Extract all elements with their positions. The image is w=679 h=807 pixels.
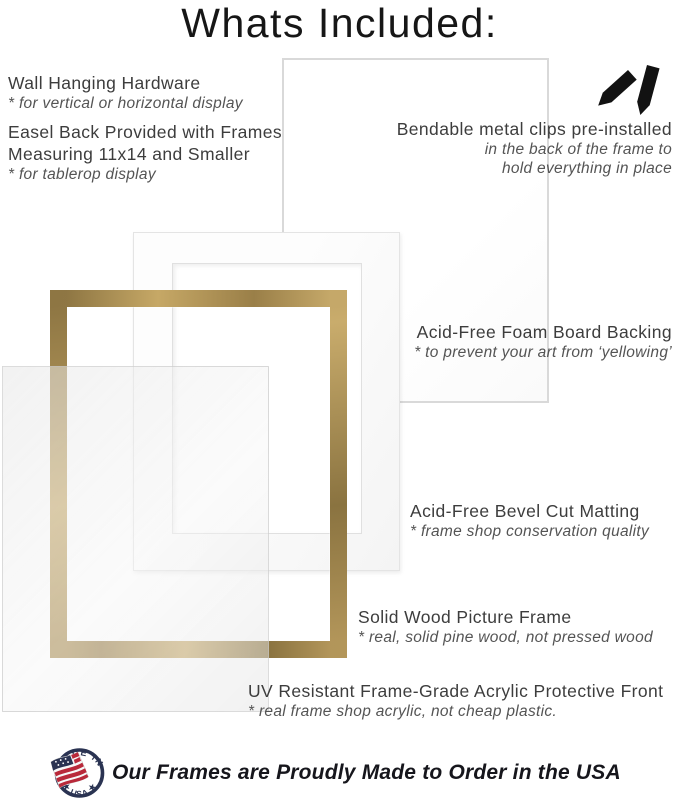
item-acrylic-front-note: * real frame shop acrylic, not cheap pla…	[248, 702, 663, 721]
item-wood-frame-title: Solid Wood Picture Frame	[358, 607, 653, 628]
infographic-canvas: Whats Included: Wall Hanging Hardware * …	[0, 0, 679, 807]
item-matting-note: * frame shop conservation quality	[410, 522, 649, 541]
item-foam-board-note: * to prevent your art from ‘yellowing’	[414, 343, 672, 362]
page-title: Whats Included:	[0, 0, 679, 47]
item-easel-back: Easel Back Provided with Frames Measurin…	[8, 121, 282, 185]
item-wood-frame-note: * real, solid pine wood, not pressed woo…	[358, 628, 653, 647]
item-metal-clips-note-line1: in the back of the frame to	[397, 140, 672, 159]
item-foam-board: Acid-Free Foam Board Backing * to preven…	[414, 322, 672, 362]
item-matting-title: Acid-Free Bevel Cut Matting	[410, 501, 649, 522]
item-easel-back-note: * for tablerop display	[8, 165, 282, 185]
metal-clips-icon	[585, 58, 677, 128]
footer-tagline: Our Frames are Proudly Made to Order in …	[112, 761, 621, 785]
acrylic-sheet-graphic	[2, 366, 269, 712]
clip-right	[634, 65, 659, 117]
item-metal-clips: Bendable metal clips pre-installed in th…	[397, 119, 672, 178]
item-metal-clips-title: Bendable metal clips pre-installed	[397, 119, 672, 140]
item-wall-hanging-note: * for vertical or horizontal display	[8, 94, 243, 114]
item-metal-clips-note-line2: hold everything in place	[397, 159, 672, 178]
item-wood-frame: Solid Wood Picture Frame * real, solid p…	[358, 607, 653, 647]
item-foam-board-title: Acid-Free Foam Board Backing	[414, 322, 672, 343]
item-acrylic-front: UV Resistant Frame-Grade Acrylic Protect…	[248, 681, 663, 721]
item-easel-back-title-line2: Measuring 11x14 and Smaller	[8, 143, 282, 165]
item-wall-hanging: Wall Hanging Hardware * for vertical or …	[8, 72, 243, 114]
clip-left	[594, 70, 637, 110]
item-wall-hanging-title: Wall Hanging Hardware	[8, 72, 243, 94]
made-in-usa-flag-badge: MADE IN ★ USA ★	[50, 740, 108, 804]
item-easel-back-title-line1: Easel Back Provided with Frames	[8, 121, 282, 143]
item-acrylic-front-title: UV Resistant Frame-Grade Acrylic Protect…	[248, 681, 663, 702]
item-matting: Acid-Free Bevel Cut Matting * frame shop…	[410, 501, 649, 541]
